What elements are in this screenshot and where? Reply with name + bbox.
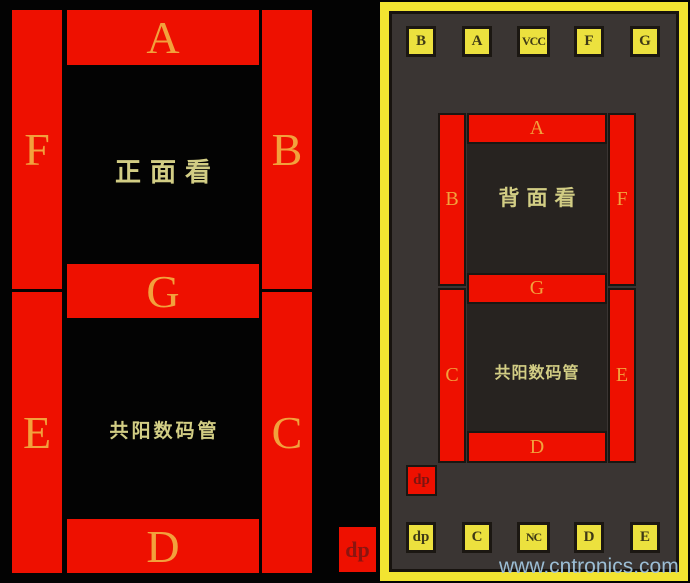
pin-bottom-d: D: [574, 522, 604, 553]
segment-label-f: F: [24, 123, 50, 176]
pin-bottom-e: E: [630, 522, 660, 553]
front-segment-g: G: [67, 264, 259, 318]
back-segment-g: G: [467, 273, 607, 304]
back-segment-f: F: [608, 113, 636, 286]
pin-bottom-dp: dp: [406, 522, 436, 553]
back-segment-dp: dp: [406, 465, 437, 496]
segment-label-b: B: [272, 123, 303, 176]
front-segment-a: A: [67, 10, 259, 65]
segment-label-a: A: [146, 11, 179, 64]
pin-label: E: [640, 529, 650, 546]
pin-top-vcc: VCC: [517, 26, 550, 57]
pin-label: G: [639, 33, 651, 50]
front-display-type-label: 共阳数码管: [67, 416, 259, 443]
pin-top-b: B: [406, 26, 436, 57]
back-segment-e: E: [608, 288, 636, 463]
pin-bottom-nc: NC: [517, 522, 550, 553]
pin-top-a: A: [462, 26, 492, 57]
segment-label-a: A: [530, 117, 544, 140]
back-segment-d: D: [467, 431, 607, 463]
back-display-type-label: 共阳数码管: [467, 359, 607, 383]
segment-label-d: D: [530, 436, 544, 459]
segment-label-f: F: [616, 188, 627, 211]
pin-label: NC: [526, 530, 541, 545]
segment-label-c: C: [445, 364, 458, 387]
pin-label: VCC: [522, 34, 545, 49]
front-segment-c: C: [262, 292, 312, 573]
segment-label-d: D: [146, 520, 179, 573]
back-view-panel: B A VCC F G A B F G C E D dp 背面看: [380, 2, 688, 581]
seven-segment-pinout-diagram: A F B G E C D dp 正面看 共阳数码管 B A VCC F: [0, 0, 690, 583]
front-segment-b: B: [262, 10, 312, 289]
front-view-title: 正面看: [67, 152, 259, 189]
front-segment-e: E: [12, 292, 62, 573]
segment-label-g: G: [146, 265, 179, 318]
pin-top-f: F: [574, 26, 604, 57]
front-segment-f: F: [12, 10, 62, 289]
pin-label: A: [472, 33, 483, 50]
pin-top-g: G: [630, 26, 660, 57]
back-segment-a: A: [467, 113, 607, 144]
segment-label-g: G: [530, 277, 544, 300]
front-segment-d: D: [67, 519, 259, 573]
segment-label-dp: dp: [413, 472, 430, 489]
segment-label-e: E: [616, 364, 628, 387]
segment-label-e: E: [23, 406, 51, 459]
segment-label-dp: dp: [345, 537, 369, 563]
pin-bottom-c: C: [462, 522, 492, 553]
pin-label: B: [416, 33, 426, 50]
segment-label-c: C: [272, 406, 303, 459]
pin-label: F: [584, 33, 593, 50]
back-view-title: 背面看: [467, 182, 607, 212]
site-watermark: www.cntronics.com: [499, 555, 690, 579]
back-segment-c: C: [438, 288, 466, 463]
pin-label: dp: [413, 529, 430, 546]
back-segment-b: B: [438, 113, 466, 286]
pin-label: C: [472, 529, 483, 546]
front-segment-dp: dp: [339, 527, 376, 572]
pin-label: D: [584, 529, 595, 546]
segment-label-b: B: [445, 188, 458, 211]
